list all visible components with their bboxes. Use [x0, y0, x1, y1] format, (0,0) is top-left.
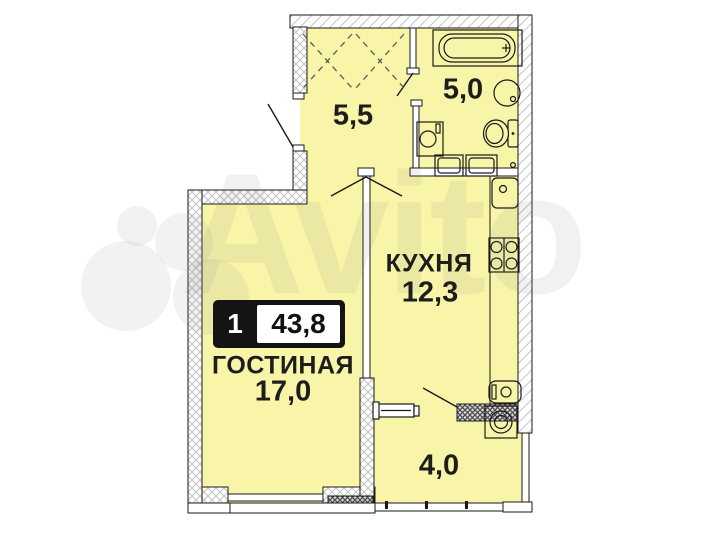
- badge-room-count: 1: [213, 305, 257, 343]
- kitchen-area-label: 12,3: [402, 277, 458, 310]
- hallway-area-label: 5,5: [333, 100, 373, 133]
- badge-total-area: 43,8: [257, 305, 340, 343]
- area-badge: 1 43,8: [213, 300, 345, 348]
- balcony-area-label: 4,0: [419, 450, 459, 483]
- bathroom-area-label: 5,0: [443, 74, 483, 107]
- room-labels: 5,5 5,0 КУХНЯ 12,3 ГОСТИНАЯ 17,0 4,0: [0, 0, 720, 534]
- kitchen-name-label: КУХНЯ: [386, 250, 473, 279]
- living-area-label: 17,0: [255, 376, 311, 409]
- floor-plan: Avito 5,5 5,0 КУХНЯ 12,3 ГОСТИНАЯ 17,0 4…: [0, 0, 720, 534]
